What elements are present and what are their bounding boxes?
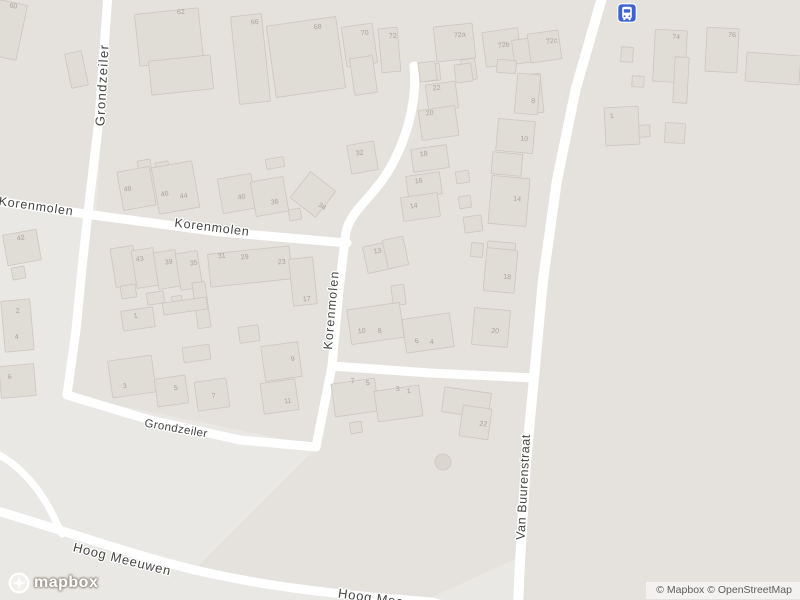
house-number-label: 60 <box>9 2 18 10</box>
building <box>491 152 523 177</box>
building <box>217 173 257 213</box>
building <box>350 56 378 96</box>
building <box>11 266 26 280</box>
building <box>454 63 473 83</box>
building <box>745 52 800 85</box>
house-number-label: 48 <box>123 185 132 193</box>
mapbox-logo[interactable]: mapbox <box>8 572 98 594</box>
building <box>621 47 634 63</box>
building <box>151 161 200 214</box>
building <box>347 302 404 344</box>
building <box>108 355 157 398</box>
house-number-label: 76 <box>728 32 736 39</box>
building <box>458 195 472 209</box>
house-number-label: 16 <box>414 177 423 185</box>
house-number-label: 70 <box>360 29 369 37</box>
map-canvas[interactable]: 60626668707272a72b72c7476122201816148101… <box>0 0 800 600</box>
house-number-label: 72 <box>389 33 397 41</box>
house-number-label: 66 <box>251 19 259 27</box>
building <box>250 176 289 216</box>
house-number-label: 18 <box>503 274 511 282</box>
building <box>470 243 483 258</box>
building <box>120 284 137 299</box>
mapbox-logo-text: mapbox <box>34 574 98 592</box>
mapbox-logo-icon <box>8 572 30 594</box>
house-number-label: 42 <box>16 234 25 242</box>
house-number-label: 11 <box>284 398 292 406</box>
building <box>483 248 518 294</box>
house-number-label: 6 <box>8 374 13 381</box>
house-number-label: 22 <box>479 421 488 429</box>
building <box>148 55 213 95</box>
house-number-label: 20 <box>491 328 499 336</box>
house-number-label: 72a <box>454 31 466 39</box>
house-number-label: 29 <box>241 254 250 262</box>
building <box>182 344 211 363</box>
building <box>261 342 303 382</box>
building <box>514 73 540 115</box>
house-number-label: 8 <box>531 98 536 105</box>
building <box>639 125 651 138</box>
building <box>527 30 562 63</box>
building <box>238 325 260 344</box>
building <box>154 375 189 407</box>
house-number-label: 39 <box>164 258 173 266</box>
building <box>411 145 450 173</box>
house-number-label: 68 <box>313 23 322 31</box>
building <box>418 106 459 141</box>
house-number-label: 43 <box>135 255 144 263</box>
building <box>604 106 640 146</box>
tree <box>435 454 451 470</box>
building <box>349 421 362 434</box>
house-number-label: 74 <box>672 34 680 41</box>
house-number-label: 44 <box>179 192 188 200</box>
attribution-text[interactable]: © Mapbox © OpenStreetMap <box>656 584 792 596</box>
house-number-label: 18 <box>419 150 428 158</box>
building <box>401 193 441 222</box>
house-number-label: 62 <box>177 9 185 17</box>
building <box>347 141 379 174</box>
mapbox-map-view: 60626668707272a72b72c7476122201816148101… <box>0 0 800 600</box>
building <box>632 76 645 88</box>
building <box>260 379 299 415</box>
building <box>673 57 689 104</box>
building <box>0 364 36 399</box>
building <box>488 175 530 226</box>
house-number-label: 20 <box>425 109 434 117</box>
house-number-label: 4 <box>15 334 20 341</box>
map-attribution[interactable]: © Mapbox © OpenStreetMap <box>646 582 800 599</box>
house-number-label: 23 <box>278 259 287 267</box>
building <box>146 291 165 306</box>
house-number-label: 2 <box>16 308 21 315</box>
building <box>288 208 302 221</box>
building <box>463 215 483 233</box>
building <box>418 61 437 82</box>
building <box>402 313 454 353</box>
building <box>496 59 516 74</box>
house-number-label: 17 <box>303 296 312 304</box>
bus-stop-icon[interactable] <box>618 4 637 23</box>
house-number-label: 14 <box>409 202 418 210</box>
building <box>1 299 34 352</box>
house-number-label: 1 <box>610 113 614 120</box>
house-number-label: 32 <box>355 149 364 157</box>
house-number-label: 22 <box>432 84 441 92</box>
house-number-label: 46 <box>160 190 169 198</box>
house-number-label: 31 <box>218 253 227 261</box>
building <box>433 23 475 62</box>
building <box>266 16 345 97</box>
house-number-label: 14 <box>513 196 521 204</box>
building <box>664 122 685 143</box>
house-number-label: 10 <box>357 327 366 335</box>
building <box>496 118 536 153</box>
house-number-label: 10 <box>520 136 528 144</box>
building <box>455 170 470 184</box>
house-number-label: 35 <box>189 259 198 267</box>
house-number-label: 36 <box>270 198 279 206</box>
house-number-label: 40 <box>237 193 246 201</box>
